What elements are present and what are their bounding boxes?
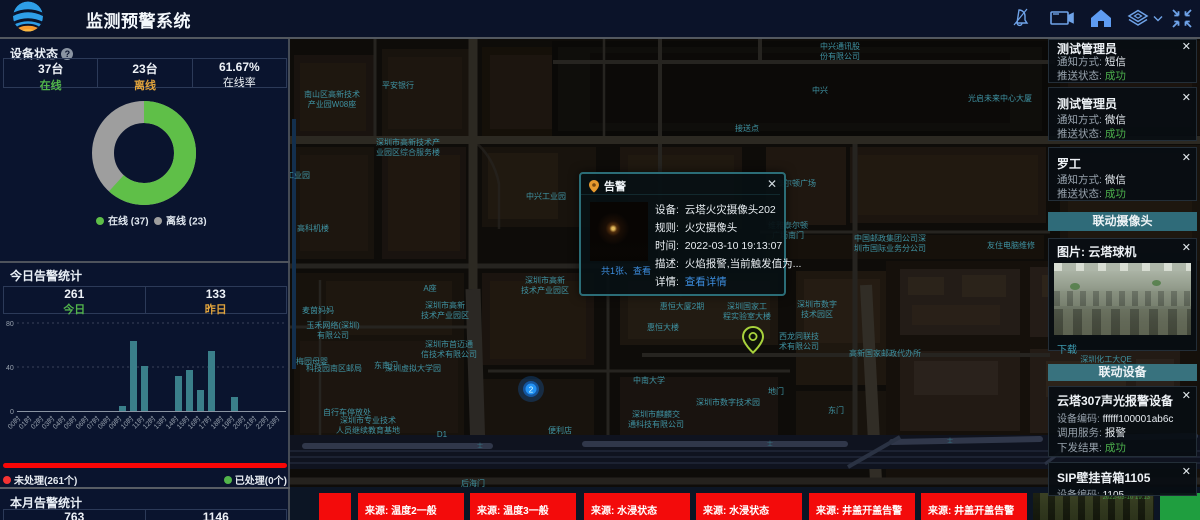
svg-text:技术园区: 技术园区	[801, 309, 833, 319]
svg-text:在线 (37): 在线 (37)	[108, 215, 149, 227]
svg-text:深圳市高新: 深圳市高新	[425, 300, 465, 310]
svg-text:份有限公司: 份有限公司	[820, 51, 860, 61]
svg-text:程实验室大楼: 程实验室大楼	[723, 311, 771, 321]
svg-text:平安银行: 平安银行	[382, 80, 414, 90]
svg-text:工业园: 工业园	[290, 170, 310, 180]
svg-text:人员继续教育基地: 人员继续教育基地	[336, 425, 400, 435]
svg-text:D1: D1	[437, 430, 448, 439]
svg-text:光启未来中心大厦: 光启未来中心大厦	[968, 93, 1032, 103]
svg-text:惠恒大楼: 惠恒大楼	[647, 322, 679, 332]
svg-text:深圳市首迈通: 深圳市首迈通	[425, 339, 473, 349]
svg-text:技术产业园区: 技术产业园区	[421, 310, 469, 320]
svg-text:80: 80	[6, 321, 14, 328]
svg-text:地门: 地门	[768, 386, 784, 396]
svg-text:接送点: 接送点	[735, 123, 759, 133]
svg-text:麦茵妈妈: 麦茵妈妈	[302, 305, 334, 315]
svg-text:0: 0	[10, 409, 14, 416]
svg-text:信技术有限公司: 信技术有限公司	[421, 349, 477, 359]
svg-text:梅园母婴: 梅园母婴	[296, 356, 328, 366]
svg-text:深圳市麒麟交: 深圳市麒麟交	[632, 409, 680, 419]
svg-text:高科机楼: 高科机楼	[297, 223, 329, 233]
svg-text:便利店: 便利店	[548, 425, 572, 435]
svg-text:术有限公司: 术有限公司	[779, 341, 819, 351]
svg-text:深圳国家工: 深圳国家工	[727, 301, 767, 311]
svg-text:深圳市数字: 深圳市数字	[797, 299, 837, 309]
svg-text:深圳市高新技术产: 深圳市高新技术产	[376, 137, 440, 147]
svg-text:产业园W08座: 产业园W08座	[308, 99, 356, 109]
svg-text:中兴通讯股: 中兴通讯股	[820, 41, 860, 51]
svg-text:有限公司: 有限公司	[317, 330, 349, 340]
svg-text:中兴工业园: 中兴工业园	[526, 191, 566, 201]
svg-text:圳市国际业务分公司: 圳市国际业务分公司	[854, 243, 926, 253]
svg-text:技术产业园区: 技术产业园区	[521, 285, 569, 295]
svg-text:中国邮政集团公司深: 中国邮政集团公司深	[854, 233, 926, 243]
svg-text:西龙同联技: 西龙同联技	[779, 331, 819, 341]
svg-text:玉禾网络(深圳): 玉禾网络(深圳)	[306, 320, 360, 330]
svg-text:离线 (23): 离线 (23)	[166, 215, 207, 227]
svg-text:2: 2	[529, 386, 534, 395]
svg-text:深圳市数字技术园: 深圳市数字技术园	[696, 397, 760, 407]
svg-text:惠恒大厦2期: 惠恒大厦2期	[660, 301, 704, 311]
svg-text:通科技有限公司: 通科技有限公司	[628, 419, 684, 429]
svg-text:中南大学: 中南大学	[633, 375, 665, 385]
svg-text:40: 40	[6, 365, 14, 372]
svg-text:东南门: 东南门	[374, 360, 398, 370]
svg-text:深圳市专业技术: 深圳市专业技术	[340, 415, 396, 425]
svg-text:A座: A座	[423, 283, 436, 293]
svg-text:东门: 东门	[828, 405, 844, 415]
svg-text:业园区综合服务楼: 业园区综合服务楼	[376, 147, 440, 157]
svg-text:南山区高新技术: 南山区高新技术	[304, 89, 360, 99]
svg-text:中兴: 中兴	[812, 85, 828, 95]
svg-text:高新国家邮政代办所: 高新国家邮政代办所	[849, 348, 921, 358]
svg-text:深圳市高新: 深圳市高新	[525, 275, 565, 285]
svg-text:友住电脑维修: 友住电脑维修	[987, 240, 1035, 250]
